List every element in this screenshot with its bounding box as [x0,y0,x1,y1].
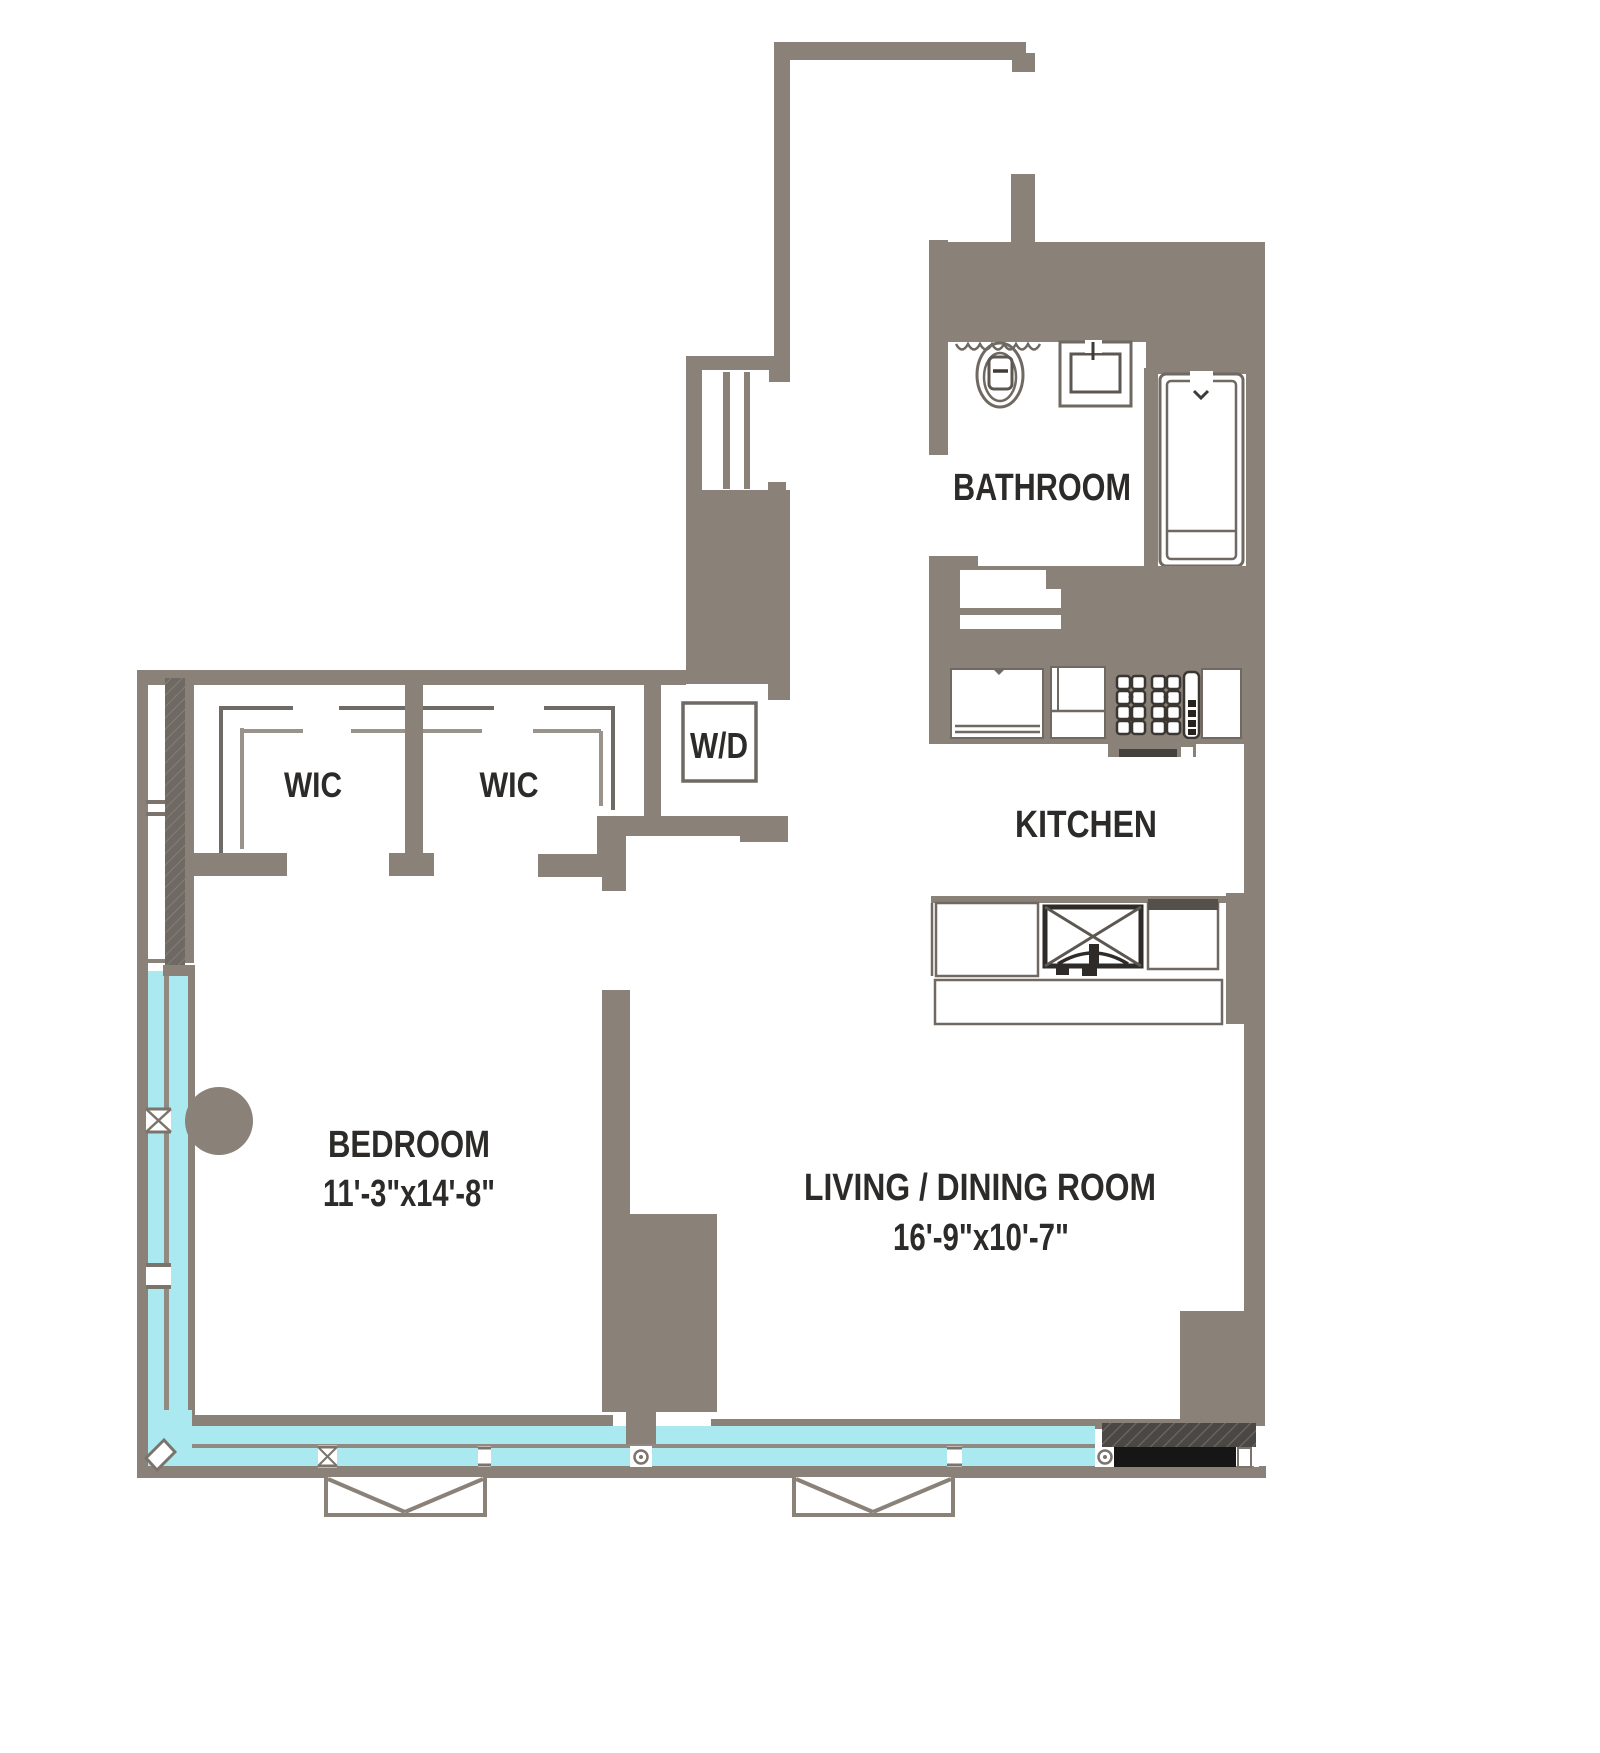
svg-text:W/D: W/D [690,725,748,766]
svg-text:11'-3"x14'-8": 11'-3"x14'-8" [323,1173,495,1215]
svg-text:16'-9"x10'-7": 16'-9"x10'-7" [893,1217,1069,1259]
svg-text:WIC: WIC [284,766,342,805]
svg-text:LIVING / DINING ROOM: LIVING / DINING ROOM [804,1167,1156,1209]
svg-text:BEDROOM: BEDROOM [328,1124,490,1166]
svg-text:WIC: WIC [480,766,539,805]
svg-text:BATHROOM: BATHROOM [953,467,1131,509]
svg-text:KITCHEN: KITCHEN [1015,804,1157,846]
